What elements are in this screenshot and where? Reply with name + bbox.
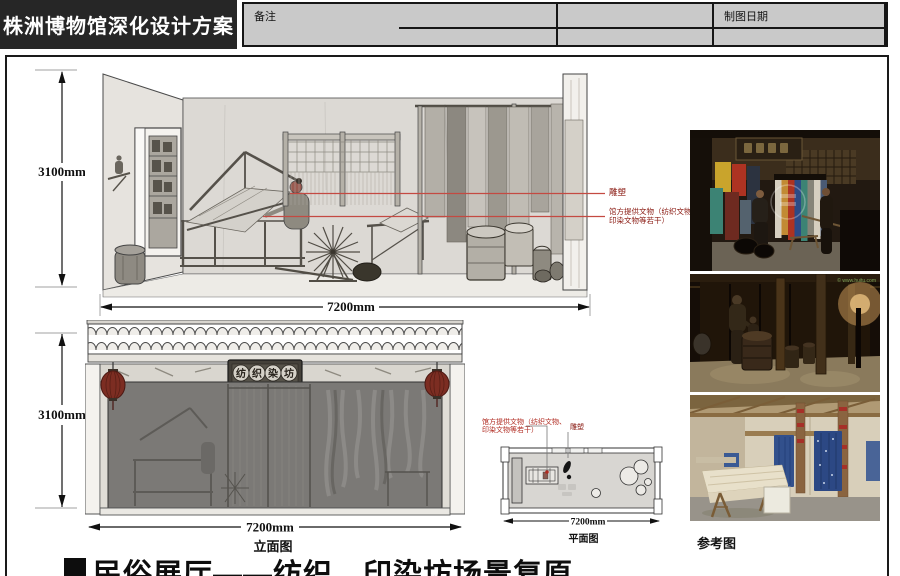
sheet-title-block: 株洲博物馆深化设计方案 [0, 0, 237, 49]
sheet-caption: 民俗展厅——纺织、印染坊场景复原 [93, 551, 573, 576]
notes-label: 备注 [244, 4, 399, 45]
diorama-signboard [736, 138, 802, 160]
title-bar-table: 制图日期 备注 [242, 2, 888, 47]
plan-loom [526, 467, 558, 484]
svg-text:3100mm: 3100mm [38, 164, 85, 179]
wood-pillar [776, 278, 785, 370]
table-cell-empty-2 [558, 4, 714, 29]
reference-photo-dye-shop-diorama [690, 130, 880, 271]
tool-cabinet [135, 128, 181, 256]
svg-text:3100mm: 3100mm [38, 407, 85, 422]
caption-square-bullet [64, 558, 86, 576]
back-table [696, 457, 736, 463]
left-column [85, 364, 100, 514]
annotation-sculpture: 雕塑 [609, 188, 626, 197]
elevation1-height-dimension: 3100mm [25, 60, 85, 300]
elevation1-width-dimension: 7200mm [95, 292, 595, 318]
annotation-relics-line2: 印染文物等若干） [609, 216, 699, 225]
drawing-date-label: 制图日期 [714, 4, 886, 29]
stool [115, 245, 145, 284]
cloth-rail [774, 174, 826, 180]
sheet-footer: 民俗展厅——纺织、印染坊场景复原 [64, 551, 573, 576]
photo-watermark-text: © www.huitu.com [837, 277, 876, 284]
right-inner-post [442, 382, 450, 508]
left-inner-post [100, 382, 108, 508]
tiled-roof [88, 324, 462, 354]
right-column [450, 364, 465, 514]
roof-ridge [87, 320, 463, 324]
table-cell-empty-1 [399, 4, 558, 29]
sign-char-3: 染 [267, 367, 279, 380]
design-sheet: 株洲博物馆深化设计方案 制图日期 备注 [0, 0, 900, 576]
plan-annotation-relics-line1: 馆方提供文物（纺织文物、 [482, 419, 566, 427]
plan-display-case [512, 458, 522, 503]
striped-cloths [775, 180, 827, 241]
dark-counter [840, 210, 880, 271]
sheet-title: 株洲博物馆深化设计方案 [3, 10, 234, 39]
interior-figure [201, 442, 215, 474]
dark-basket [353, 263, 381, 281]
dye-vat-2 [754, 244, 774, 258]
reference-label: 参考图 [697, 533, 736, 552]
table-cell-empty-3 [399, 29, 558, 45]
plan-annotation-sculpture: 雕塑 [570, 423, 584, 432]
svg-text:7200mm: 7200mm [327, 299, 375, 314]
sill [100, 508, 450, 515]
sign-char-1: 纺 [236, 367, 246, 380]
lamp-post [856, 308, 861, 368]
plan-windows [552, 448, 602, 453]
work-barrel [742, 331, 772, 370]
svg-text:7200mm: 7200mm [571, 518, 606, 528]
table-cell-empty-5 [714, 29, 886, 45]
svg-text:7200mm: 7200mm [246, 520, 294, 535]
dark-post [690, 138, 712, 271]
reference-photo-bronze-statues: © www.huitu.com [690, 274, 880, 392]
plan-view-drawing [500, 440, 665, 525]
plan-annotation-relics: 馆方提供文物（纺织文物、 印染文物等若干） [482, 419, 566, 435]
right-column [563, 74, 587, 290]
elevation-storefront-drawing: 纺 织 染 坊 [85, 320, 465, 520]
workshop-pillar-1 [796, 403, 805, 493]
plan-annotation-relics-line2: 印染文物等若干） [482, 427, 566, 435]
sign-char-2: 织 [252, 367, 262, 380]
reference-photo-indigo-workshop [690, 395, 880, 521]
plan-caption: 平面图 [556, 530, 611, 545]
annotation-relics-line1: 馆方提供文物（纺织文物、 [609, 207, 699, 216]
table-cell-empty-4 [558, 29, 714, 45]
clay-jar [693, 333, 711, 355]
annotation-relics: 馆方提供文物（纺织文物、 印染文物等若干） [609, 207, 699, 225]
wood-pillar-2 [816, 274, 826, 374]
elevation2-height-dimension: 3100mm [25, 325, 85, 520]
sign-char-4: 坊 [284, 367, 294, 380]
white-box [764, 487, 790, 513]
elevation-interior-drawing [95, 60, 595, 300]
